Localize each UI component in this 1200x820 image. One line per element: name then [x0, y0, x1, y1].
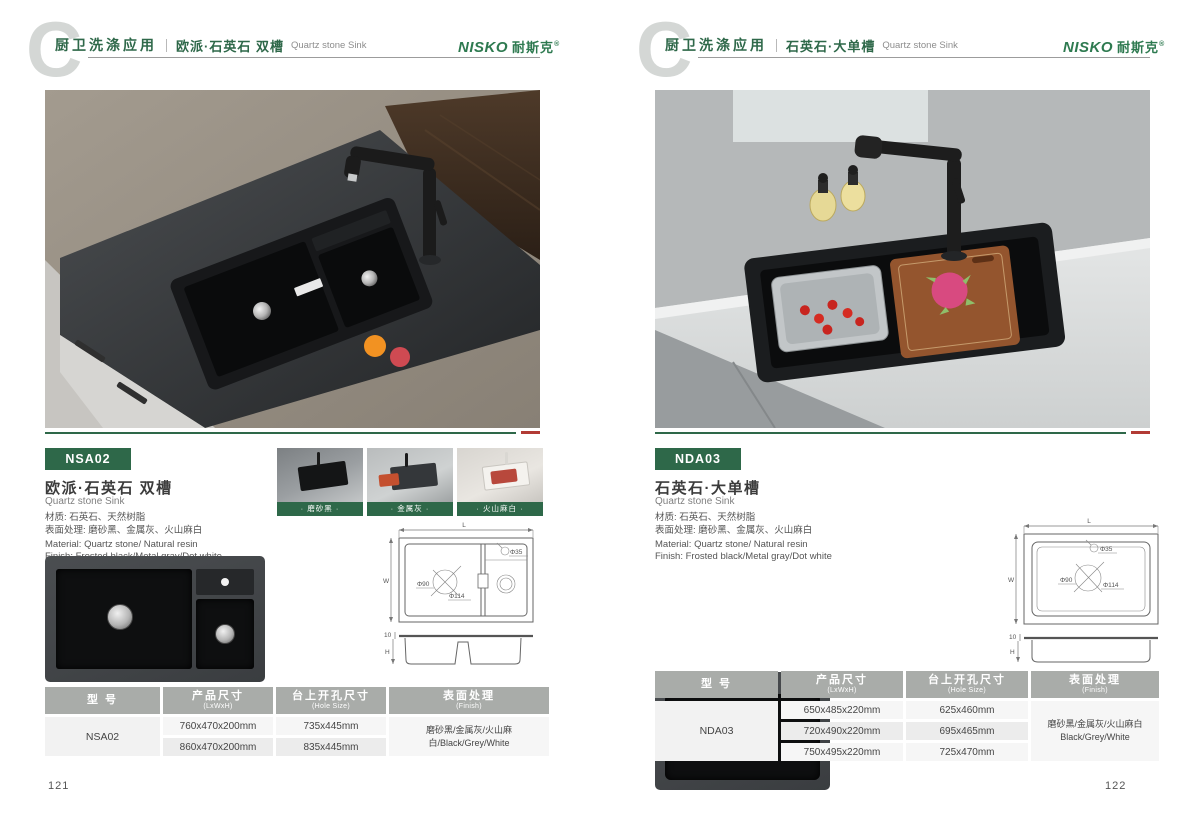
size-cell: 860x470x200mm — [163, 738, 273, 756]
swatch-image-black — [277, 448, 363, 502]
hole-cell: 625x460mm — [906, 701, 1028, 719]
dimension-drawing-double: L W Φ35 Φ90 Φ114 10 H — [383, 520, 543, 670]
col-header-finish: 表面处理(Finish) — [1031, 671, 1159, 698]
swatch-dot-white: · 火山麻白 · — [457, 448, 543, 516]
hole-cell: 835x445mm — [276, 738, 386, 756]
dim-label-lip: 10 — [384, 632, 392, 639]
main-photo-single-sink — [655, 90, 1150, 428]
product-code-badge: NSA02 — [45, 448, 131, 470]
swatch-sink-black — [298, 461, 349, 491]
page-number-right: 122 — [1105, 780, 1126, 792]
header-series-en: Quartz stone Sink — [291, 40, 367, 51]
product-code-badge: NDA03 — [655, 448, 741, 470]
col-header-hole: 台上开孔尺寸(Hole Size) — [906, 671, 1028, 698]
finish-cell: 磨砂黑/金属灰/火山麻白/Black/Grey/White — [389, 717, 549, 756]
registered-mark: ® — [554, 41, 560, 48]
spec-material-en: Material: Quartz stone/ Natural resin — [45, 539, 222, 551]
dim-label-drain-outer: Φ114 — [1103, 582, 1119, 589]
catalog-spread: C 厨卫洗涤应用 欧派·石英石 双槽 Quartz stone Sink NIS… — [0, 0, 1200, 820]
header-series: 石英石·大单槽 — [786, 36, 875, 55]
hole-cell: 695x465mm — [906, 722, 1028, 740]
dim-label-faucet-hole: Φ35 — [1100, 546, 1113, 553]
product-title: 石英石·大单槽 — [655, 477, 761, 498]
size-cell: 760x470x200mm — [163, 717, 273, 735]
faucet-hole-dot — [221, 578, 229, 586]
product-specs-cn: 材质: 石英石、天然树脂 表面处理: 磨砂黑、金属灰、火山麻白 — [45, 512, 202, 538]
window-light — [733, 90, 928, 142]
table-row: NSA02 760x470x200mm 735x445mm 磨砂黑/金属灰/火山… — [45, 717, 549, 735]
swatch-frosted-black: · 磨砂黑 · — [277, 448, 363, 516]
size-cell: 750x495x220mm — [781, 743, 903, 761]
spec-material-cn: 材质: 石英石、天然树脂 — [655, 512, 812, 525]
product-title-en: Quartz stone Sink — [45, 496, 124, 507]
dim-label-drain-outer: Φ114 — [449, 593, 465, 600]
header-divider — [776, 39, 777, 52]
swatch-faucet — [405, 453, 408, 467]
finish-line: 磨砂黑/金属灰/火山麻白 — [1031, 718, 1159, 731]
spec-finish-en: Finish: Frosted black/Metal gray/Dot whi… — [655, 551, 832, 563]
drain — [215, 624, 235, 644]
main-photo-double-sink — [45, 90, 540, 428]
spec-material-en: Material: Quartz stone/ Natural resin — [655, 539, 832, 551]
dim-label-h: H — [1010, 649, 1015, 656]
brand-logo-name: NISKO — [458, 39, 508, 56]
col-header-model: 型 号 — [45, 687, 160, 714]
swatch-metal-gray: · 金属灰 · — [367, 448, 453, 516]
swatch-faucet — [317, 452, 320, 466]
spec-finish-cn: 表面处理: 磨砂黑、金属灰、火山麻白 — [45, 525, 202, 538]
dimension-drawing-single: L W Φ35 Φ90 Φ114 10 H — [1008, 516, 1168, 666]
registered-mark: ® — [1159, 41, 1165, 48]
dim-label-h: H — [385, 649, 390, 656]
top-view-image-double — [45, 556, 265, 682]
divider-red — [521, 431, 540, 434]
brand-logo: NISKO耐斯克® — [458, 37, 560, 56]
red-fruit — [390, 347, 410, 367]
col-header-model: 型 号 — [655, 671, 778, 698]
finish-line: Black/Grey/White — [1031, 731, 1159, 744]
header-category: 厨卫洗涤应用 — [55, 35, 157, 55]
drain — [107, 604, 133, 630]
col-header-size: 产品尺寸(LxWxH) — [163, 687, 273, 714]
product-specs-cn: 材质: 石英石、天然树脂 表面处理: 磨砂黑、金属灰、火山麻白 — [655, 512, 812, 538]
header-series: 欧派·石英石 双槽 — [176, 36, 284, 55]
swatch-image-gray — [367, 448, 453, 502]
col-header-finish: 表面处理(Finish) — [389, 687, 549, 714]
product-title: 欧派·石英石 双槽 — [45, 477, 173, 498]
page-number-left: 121 — [48, 780, 69, 792]
brand-logo-name: NISKO — [1063, 39, 1113, 56]
swatch-faucet — [505, 452, 508, 465]
col-header-size: 产品尺寸(LxWxH) — [781, 671, 903, 698]
header-series-en: Quartz stone Sink — [882, 40, 958, 51]
header-rule — [88, 57, 540, 58]
brand-logo-cn: 耐斯克 — [1117, 40, 1159, 55]
page-header-left: 厨卫洗涤应用 欧派·石英石 双槽 Quartz stone Sink — [55, 36, 366, 54]
header-rule — [698, 57, 1150, 58]
divider-green — [655, 432, 1126, 434]
swatch-caption: · 磨砂黑 · — [277, 502, 363, 516]
dim-label-lip: 10 — [1009, 634, 1017, 641]
single-sink-scene — [655, 90, 1150, 428]
brand-logo-cn: 耐斯克 — [512, 40, 554, 55]
spec-table-right: 型 号 产品尺寸(LxWxH) 台上开孔尺寸(Hole Size) 表面处理(F… — [652, 668, 1162, 764]
hole-cell: 725x470mm — [906, 743, 1028, 761]
product-specs-en: Material: Quartz stone/ Natural resin Fi… — [655, 539, 832, 564]
dim-label-l: L — [462, 522, 466, 529]
product-title-en: Quartz stone Sink — [655, 496, 734, 507]
swatch-caption: · 金属灰 · — [367, 502, 453, 516]
dim-label-w: W — [383, 578, 390, 585]
dim-label-faucet-hole: Φ35 — [510, 549, 523, 556]
dim-label-drain-inner: Φ90 — [1060, 577, 1073, 584]
divider-red — [1131, 431, 1150, 434]
color-swatches: · 磨砂黑 · · 金属灰 · · 火山麻白 · — [277, 448, 543, 516]
finish-cell: 磨砂黑/金属灰/火山麻白 Black/Grey/White — [1031, 701, 1159, 761]
dim-label-w: W — [1008, 577, 1015, 584]
swatch-caption: · 火山麻白 · — [457, 502, 543, 516]
size-cell: 650x485x220mm — [781, 701, 903, 719]
spec-table-left: 型 号 产品尺寸(LxWxH) 台上开孔尺寸(Hole Size) 表面处理(F… — [42, 684, 552, 759]
table-row: NDA03 650x485x220mm 625x460mm 磨砂黑/金属灰/火山… — [655, 701, 1159, 719]
dim-label-l: L — [1087, 518, 1091, 525]
model-cell: NSA02 — [45, 717, 160, 756]
swatch-image-white — [457, 448, 543, 502]
hole-cell: 735x445mm — [276, 717, 386, 735]
brand-logo: NISKO耐斯克® — [1063, 37, 1165, 56]
swatch-board — [378, 473, 399, 487]
col-header-hole: 台上开孔尺寸(Hole Size) — [276, 687, 386, 714]
header-divider — [166, 39, 167, 52]
photo-divider — [655, 431, 1150, 434]
model-cell: NDA03 — [655, 701, 778, 761]
size-cell: 720x490x220mm — [781, 722, 903, 740]
orange-fruit — [364, 335, 386, 357]
divider-green — [45, 432, 516, 434]
header-category: 厨卫洗涤应用 — [665, 35, 767, 55]
spec-material-cn: 材质: 石英石、天然树脂 — [45, 512, 202, 525]
spec-finish-cn: 表面处理: 磨砂黑、金属灰、火山麻白 — [655, 525, 812, 538]
page-header-right: 厨卫洗涤应用 石英石·大单槽 Quartz stone Sink — [665, 36, 958, 54]
dim-label-drain-inner: Φ90 — [417, 581, 430, 588]
photo-divider — [45, 431, 540, 434]
double-sink-scene — [45, 90, 540, 428]
